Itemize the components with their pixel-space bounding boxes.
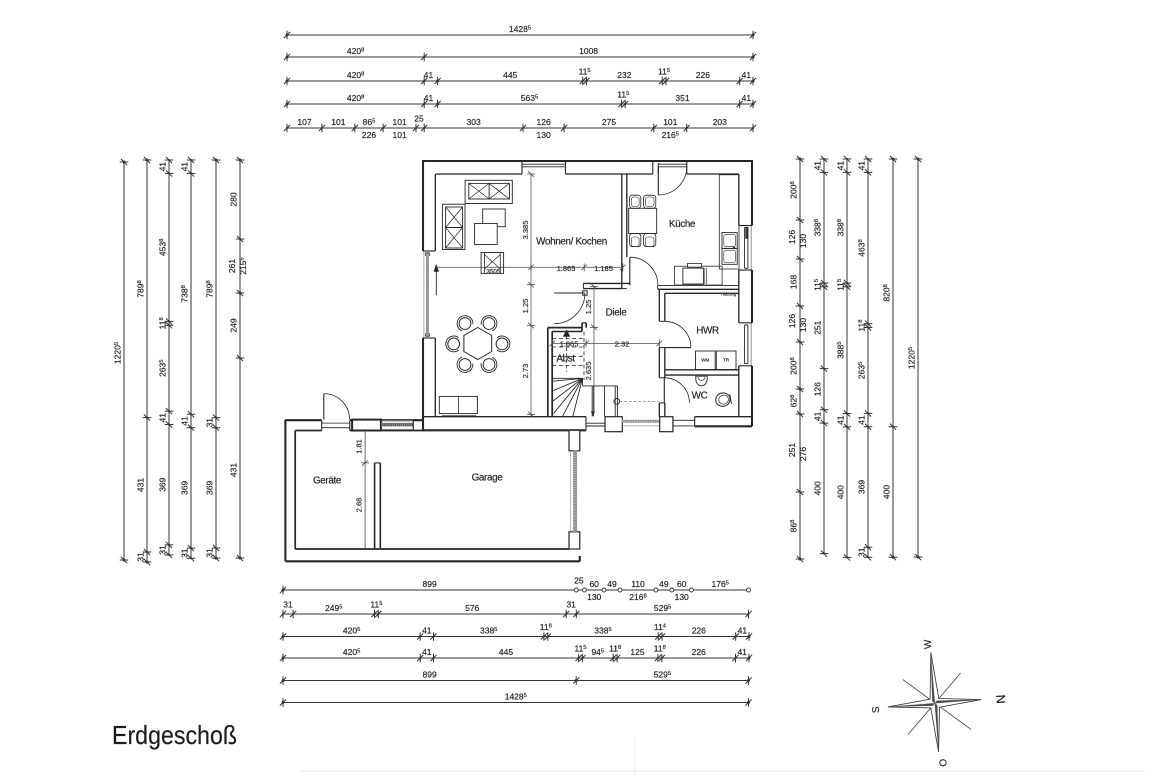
svg-text:41: 41 [158, 413, 168, 423]
svg-text:41: 41 [422, 647, 432, 657]
svg-text:41: 41 [737, 647, 747, 657]
svg-text:25: 25 [414, 114, 424, 124]
svg-text:WC: WC [692, 391, 708, 402]
svg-text:369: 369 [180, 481, 190, 495]
svg-text:14285: 14285 [509, 24, 531, 34]
svg-text:12205: 12205 [907, 347, 917, 369]
svg-text:S: S [871, 706, 882, 714]
svg-text:126: 126 [537, 117, 551, 127]
svg-text:31: 31 [136, 552, 146, 562]
svg-text:1008: 1008 [579, 46, 598, 56]
svg-text:1.25: 1.25 [521, 299, 530, 314]
svg-text:N: N [993, 694, 1008, 704]
svg-text:431: 431 [229, 463, 239, 477]
svg-text:130: 130 [675, 592, 689, 602]
svg-text:41: 41 [158, 162, 168, 172]
svg-text:1.865: 1.865 [557, 264, 576, 273]
svg-text:275: 275 [602, 117, 616, 127]
svg-text:576: 576 [465, 603, 479, 613]
svg-text:351: 351 [675, 93, 689, 103]
svg-text:Garage: Garage [472, 473, 504, 484]
svg-text:41: 41 [813, 161, 823, 171]
svg-text:130: 130 [798, 318, 808, 332]
svg-text:41: 41 [836, 161, 846, 171]
svg-text:226: 226 [692, 647, 706, 657]
svg-text:Heizung: Heizung [721, 292, 737, 297]
svg-text:899: 899 [423, 670, 437, 680]
svg-text:369: 369 [205, 481, 215, 495]
svg-text:Abst: Abst [556, 354, 575, 365]
svg-text:2.73: 2.73 [521, 364, 530, 379]
svg-text:251: 251 [813, 320, 823, 334]
svg-text:41: 41 [857, 415, 867, 425]
svg-text:TR: TR [723, 358, 730, 363]
svg-text:Diele: Diele [606, 308, 628, 319]
svg-text:1.865: 1.865 [560, 339, 579, 348]
svg-text:101: 101 [393, 130, 407, 140]
svg-text:110: 110 [631, 579, 645, 589]
svg-text:303: 303 [467, 117, 481, 127]
svg-text:226: 226 [696, 70, 710, 80]
svg-text:31: 31 [857, 547, 867, 557]
svg-text:O: O [936, 759, 948, 768]
svg-text:Wohnen/ Kochen: Wohnen/ Kochen [536, 237, 607, 248]
svg-text:107: 107 [297, 117, 311, 127]
svg-text:31: 31 [205, 418, 215, 428]
svg-text:Geräte: Geräte [313, 476, 342, 487]
svg-text:31: 31 [180, 548, 190, 558]
svg-text:400: 400 [813, 481, 823, 495]
svg-text:369: 369 [857, 480, 867, 494]
svg-text:249: 249 [229, 318, 239, 332]
svg-text:41: 41 [180, 416, 190, 426]
svg-text:Erdgeschoß: Erdgeschoß [112, 720, 237, 750]
svg-text:445: 445 [499, 647, 513, 657]
svg-text:232: 232 [617, 70, 631, 80]
svg-text:25: 25 [574, 576, 584, 586]
svg-text:41: 41 [424, 70, 434, 80]
svg-text:369: 369 [158, 477, 168, 491]
svg-text:226: 226 [692, 626, 706, 636]
svg-text:2.635: 2.635 [584, 362, 593, 381]
svg-text:125: 125 [630, 647, 644, 657]
svg-text:126: 126 [813, 382, 823, 396]
svg-text:41: 41 [836, 415, 846, 425]
svg-text:31: 31 [158, 545, 168, 555]
svg-text:251: 251 [787, 443, 797, 457]
svg-text:41: 41 [424, 93, 434, 103]
svg-text:431: 431 [136, 478, 146, 492]
svg-text:203: 203 [713, 117, 727, 127]
svg-text:126: 126 [787, 314, 797, 328]
svg-text:2.32: 2.32 [615, 339, 630, 348]
svg-text:101: 101 [663, 117, 677, 127]
svg-text:41: 41 [742, 70, 752, 80]
svg-text:261: 261 [227, 259, 237, 273]
svg-text:31: 31 [283, 600, 293, 610]
svg-text:1.25: 1.25 [584, 300, 593, 315]
svg-text:41: 41 [813, 411, 823, 421]
svg-text:31: 31 [205, 548, 215, 558]
svg-text:126: 126 [787, 230, 797, 244]
svg-text:41: 41 [180, 162, 190, 172]
svg-text:60: 60 [677, 579, 687, 589]
svg-text:3.385: 3.385 [521, 221, 530, 240]
svg-text:445: 445 [503, 70, 517, 80]
svg-text:101: 101 [393, 117, 407, 127]
svg-text:41: 41 [857, 161, 867, 171]
svg-text:31: 31 [566, 600, 576, 610]
svg-text:12205: 12205 [113, 342, 123, 364]
svg-text:W: W [923, 639, 935, 650]
svg-text:49: 49 [607, 579, 617, 589]
svg-text:1.81: 1.81 [355, 439, 364, 454]
svg-text:130: 130 [798, 234, 808, 248]
svg-text:2.68: 2.68 [355, 498, 364, 513]
svg-text:101: 101 [331, 117, 345, 127]
svg-text:226: 226 [362, 130, 376, 140]
svg-text:14285: 14285 [505, 692, 527, 702]
svg-text:899: 899 [423, 579, 437, 589]
svg-text:130: 130 [587, 592, 601, 602]
svg-text:49: 49 [659, 579, 669, 589]
svg-text:1.185: 1.185 [594, 264, 613, 273]
svg-text:280: 280 [229, 192, 239, 206]
svg-text:41: 41 [738, 626, 748, 636]
svg-text:WM: WM [701, 358, 709, 363]
svg-text:168: 168 [789, 275, 799, 289]
svg-text:400: 400 [882, 485, 892, 499]
svg-text:130: 130 [537, 130, 551, 140]
svg-text:Küche: Küche [669, 219, 696, 230]
svg-text:HWR: HWR [696, 326, 719, 337]
svg-text:276: 276 [798, 447, 808, 461]
svg-text:400: 400 [836, 485, 846, 499]
svg-text:60: 60 [589, 579, 599, 589]
svg-text:3505: 3505 [487, 268, 501, 275]
svg-text:41: 41 [742, 93, 752, 103]
svg-text:41: 41 [422, 626, 432, 636]
